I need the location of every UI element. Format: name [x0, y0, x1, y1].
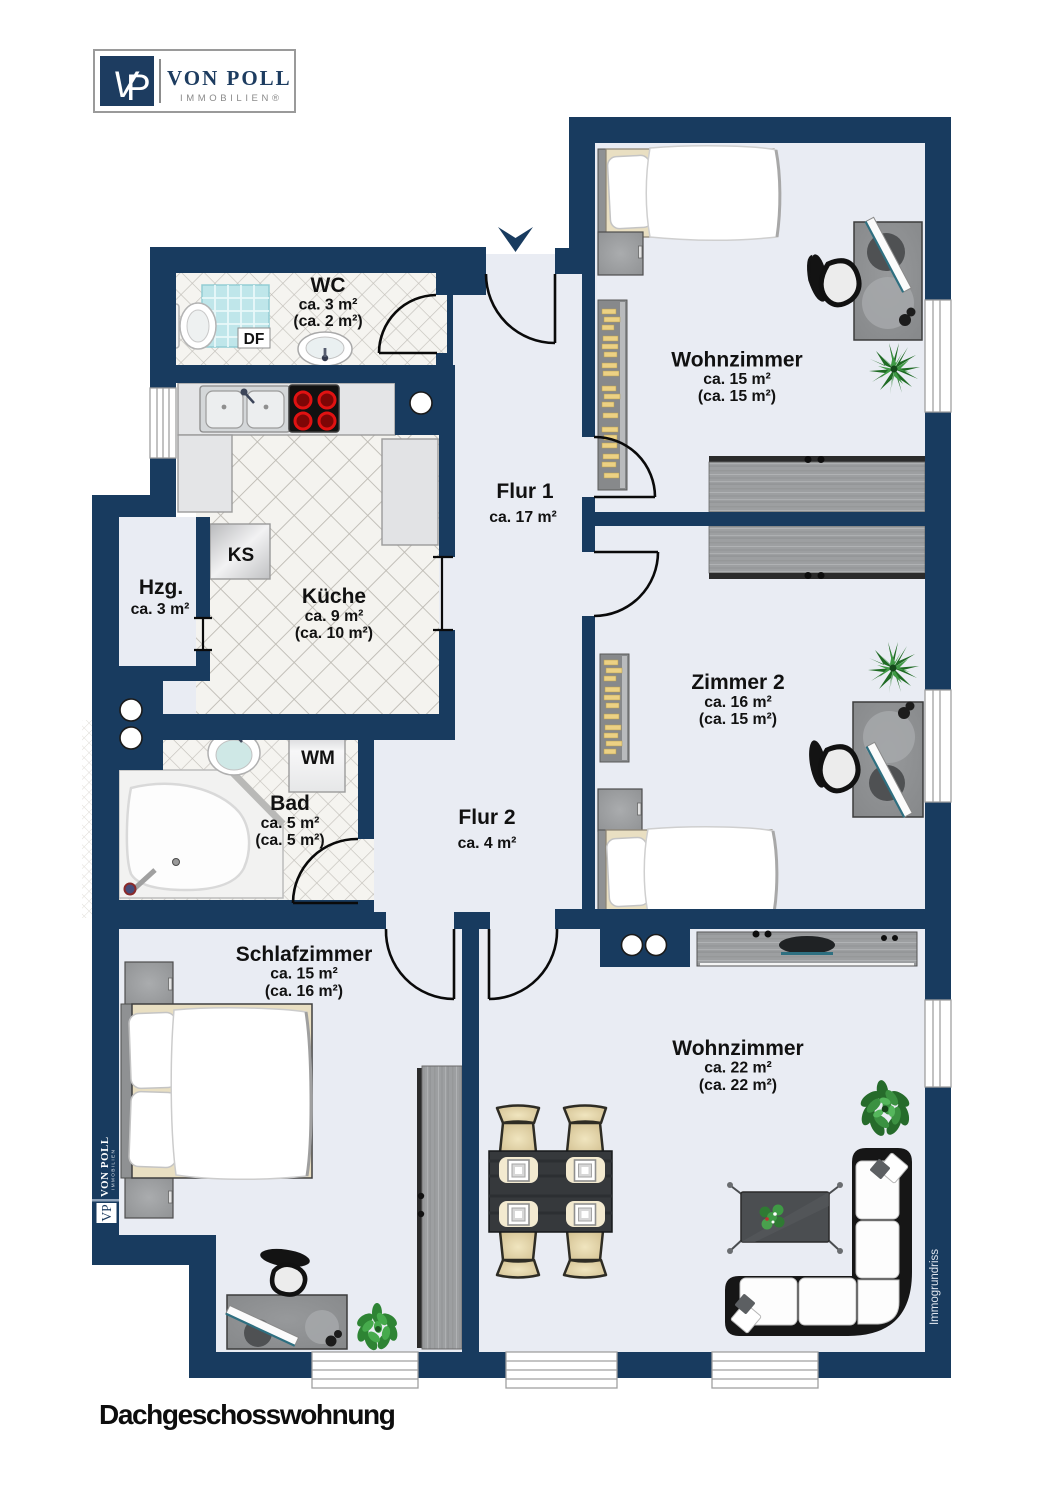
- svg-text:ca. 15 m²: ca. 15 m²: [270, 966, 338, 983]
- svg-text:(ca. 22 m²): (ca. 22 m²): [699, 1077, 777, 1094]
- svg-text:(ca. 10 m²): (ca. 10 m²): [295, 625, 373, 642]
- svg-text:WM: WM: [301, 748, 335, 769]
- svg-text:ca. 22 m²: ca. 22 m²: [704, 1060, 772, 1077]
- svg-text:Immogrundriss: Immogrundriss: [929, 1249, 941, 1325]
- svg-text:ca. 17 m²: ca. 17 m²: [489, 509, 557, 526]
- svg-text:Wohnzimmer: Wohnzimmer: [671, 349, 802, 372]
- svg-text:KS: KS: [228, 545, 254, 566]
- svg-text:ca. 16 m²: ca. 16 m²: [704, 694, 772, 711]
- svg-text:Küche: Küche: [302, 585, 366, 608]
- svg-text:Schlafzimmer: Schlafzimmer: [236, 943, 373, 966]
- svg-text:Flur 1: Flur 1: [496, 480, 553, 503]
- svg-text:(ca. 16 m²): (ca. 16 m²): [265, 983, 343, 1000]
- svg-text:(ca. 5 m²): (ca. 5 m²): [255, 832, 324, 849]
- svg-text:(ca. 15 m²): (ca. 15 m²): [698, 388, 776, 405]
- svg-text:ca. 15 m²: ca. 15 m²: [703, 371, 771, 388]
- svg-text:ca. 3 m²: ca. 3 m²: [131, 601, 190, 618]
- svg-text:VP: VP: [99, 1204, 114, 1221]
- svg-text:Hzg.: Hzg.: [139, 576, 183, 599]
- svg-text:IMMOBILIEN: IMMOBILIEN: [111, 1149, 117, 1190]
- svg-text:P: P: [126, 67, 151, 108]
- svg-text:Bad: Bad: [270, 792, 310, 815]
- svg-text:IMMOBILIEN®: IMMOBILIEN®: [180, 93, 283, 104]
- svg-text:Flur 2: Flur 2: [458, 806, 515, 829]
- svg-text:(ca. 15 m²): (ca. 15 m²): [699, 711, 777, 728]
- svg-text:VON POLL: VON POLL: [99, 1136, 111, 1197]
- svg-text:DF: DF: [244, 331, 265, 348]
- svg-text:(ca. 2 m²): (ca. 2 m²): [293, 313, 362, 330]
- svg-text:VON POLL: VON POLL: [167, 66, 292, 90]
- svg-text:ca. 4 m²: ca. 4 m²: [458, 835, 517, 852]
- svg-text:Dachgeschosswohnung: Dachgeschosswohnung: [99, 1399, 395, 1430]
- svg-text:Zimmer 2: Zimmer 2: [691, 671, 784, 694]
- svg-text:ca. 3 m²: ca. 3 m²: [299, 297, 358, 314]
- svg-text:WC: WC: [311, 274, 346, 297]
- svg-text:Wohnzimmer: Wohnzimmer: [672, 1037, 803, 1060]
- svg-text:ca. 9 m²: ca. 9 m²: [305, 608, 364, 625]
- svg-text:ca. 5 m²: ca. 5 m²: [261, 815, 320, 832]
